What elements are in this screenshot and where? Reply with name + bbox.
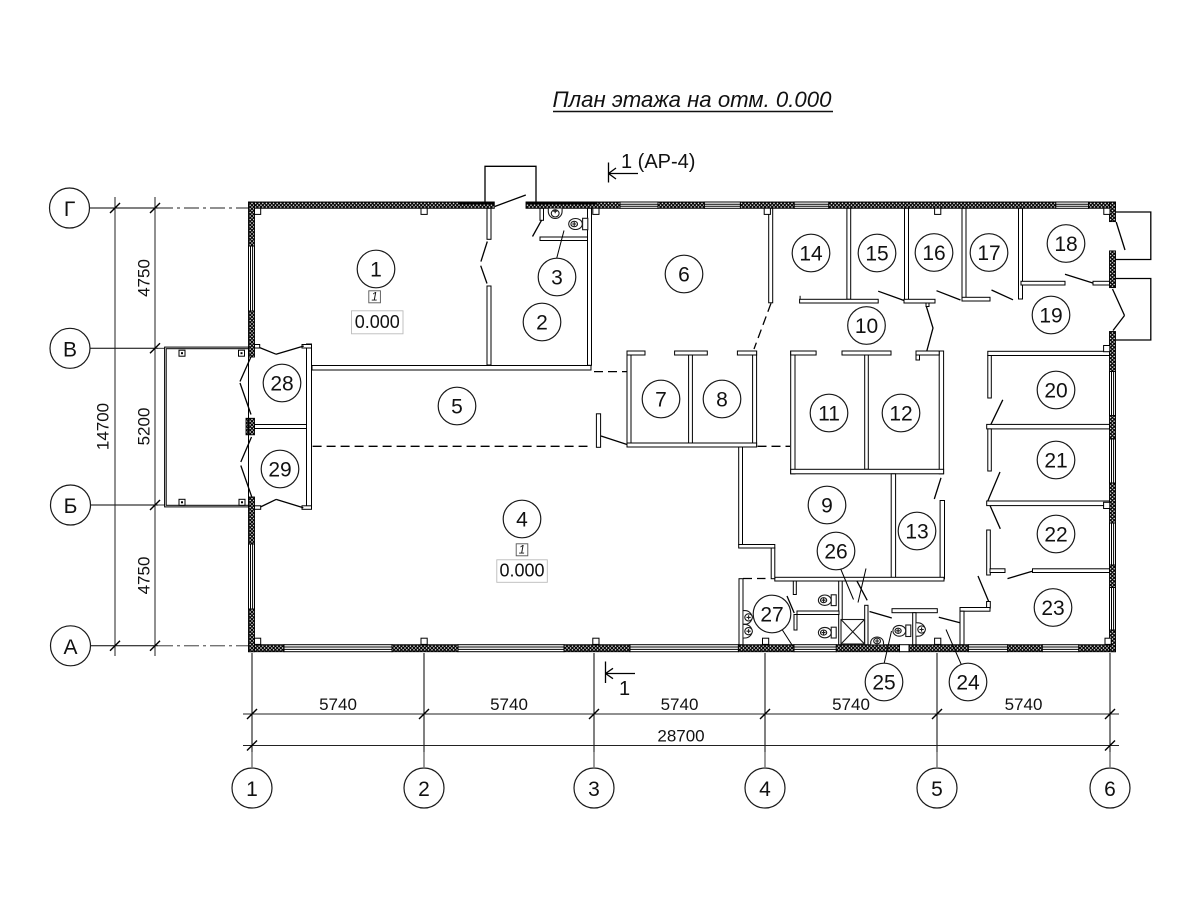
svg-text:16: 16 [922, 242, 945, 265]
svg-text:4750: 4750 [135, 259, 154, 297]
svg-text:9: 9 [821, 495, 833, 518]
svg-text:27: 27 [760, 604, 783, 627]
svg-text:4: 4 [516, 509, 528, 532]
svg-text:20: 20 [1044, 380, 1067, 403]
svg-text:1: 1 [619, 678, 630, 700]
svg-text:1: 1 [246, 778, 258, 801]
svg-text:26: 26 [824, 541, 847, 564]
svg-text:12: 12 [889, 403, 912, 426]
svg-text:6: 6 [1104, 778, 1116, 801]
svg-text:0.000: 0.000 [355, 312, 400, 332]
svg-text:10: 10 [855, 315, 878, 338]
svg-text:3: 3 [551, 267, 563, 290]
svg-text:Г: Г [64, 198, 75, 221]
svg-text:5740: 5740 [832, 695, 870, 714]
svg-text:2: 2 [536, 312, 548, 335]
svg-text:11: 11 [818, 403, 840, 426]
svg-text:28: 28 [270, 373, 293, 396]
svg-text:5: 5 [931, 778, 943, 801]
svg-text:А: А [63, 636, 77, 659]
svg-text:18: 18 [1054, 233, 1077, 256]
svg-text:2: 2 [418, 778, 430, 801]
svg-text:28700: 28700 [657, 727, 704, 746]
svg-text:5740: 5740 [661, 695, 699, 714]
svg-text:25: 25 [872, 672, 895, 695]
svg-text:29: 29 [268, 459, 291, 482]
svg-text:7: 7 [655, 389, 667, 412]
svg-text:5: 5 [451, 396, 463, 419]
svg-text:3: 3 [588, 778, 600, 801]
svg-text:23: 23 [1041, 597, 1064, 620]
svg-text:21: 21 [1044, 450, 1067, 473]
svg-text:6: 6 [678, 264, 690, 287]
svg-text:Б: Б [64, 495, 78, 518]
svg-text:1: 1 [519, 545, 525, 557]
svg-text:1 (АР-4): 1 (АР-4) [621, 151, 695, 173]
svg-text:13: 13 [905, 521, 928, 544]
svg-text:24: 24 [956, 672, 980, 695]
svg-text:5200: 5200 [135, 408, 154, 446]
svg-text:1: 1 [371, 292, 377, 304]
svg-text:5740: 5740 [490, 695, 528, 714]
svg-text:5740: 5740 [1005, 695, 1043, 714]
svg-text:8: 8 [716, 389, 728, 412]
svg-text:17: 17 [977, 242, 1000, 265]
svg-text:14700: 14700 [94, 403, 113, 450]
svg-text:4: 4 [759, 778, 771, 801]
svg-text:5740: 5740 [319, 695, 357, 714]
svg-text:4750: 4750 [135, 557, 154, 595]
svg-text:14: 14 [799, 243, 823, 266]
svg-text:22: 22 [1044, 524, 1067, 547]
svg-text:0.000: 0.000 [499, 561, 544, 581]
svg-text:19: 19 [1039, 305, 1062, 328]
svg-text:В: В [63, 338, 77, 361]
svg-text:15: 15 [865, 243, 888, 266]
svg-text:План этажа на отм. 0.000: План этажа на отм. 0.000 [553, 87, 833, 112]
svg-text:1: 1 [370, 259, 382, 282]
